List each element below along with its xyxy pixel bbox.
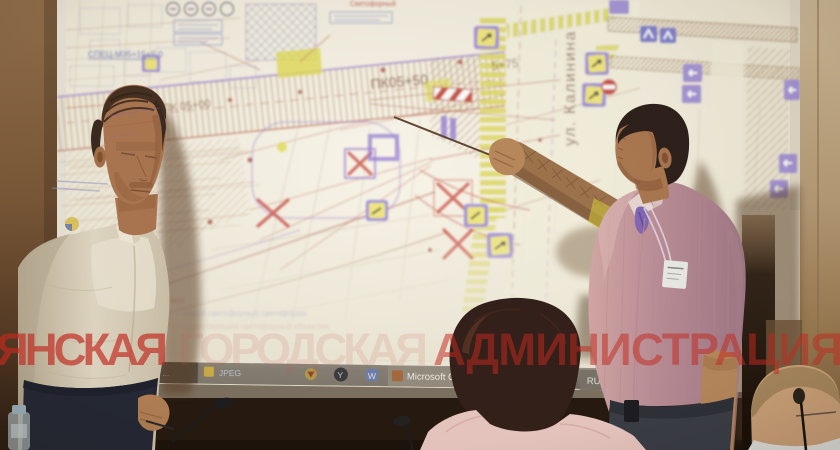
svg-text:АДМИНИСТРАЦИЯ: АДМИНИСТРАЦИЯ — [433, 324, 840, 375]
svg-text:ЯНСКАЯ: ЯНСКАЯ — [0, 324, 168, 375]
svg-text:ГОРОДСКАЯ: ГОРОДСКАЯ — [178, 324, 428, 375]
